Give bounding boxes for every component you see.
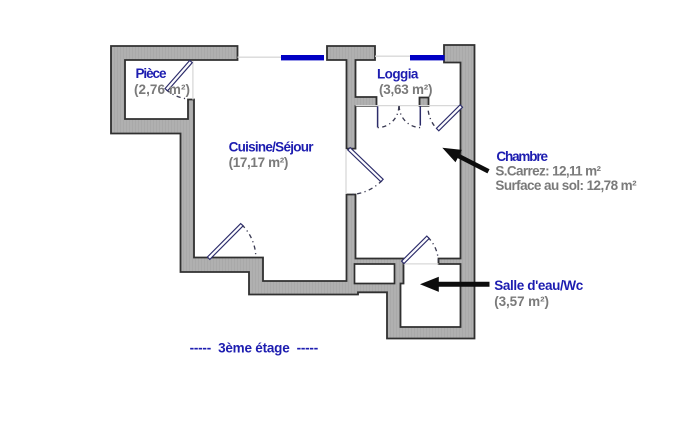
svg-text:Cuisine/Séjour: Cuisine/Séjour [229, 139, 315, 154]
svg-text:Pièce: Pièce [136, 66, 167, 81]
svg-text:S.Carrez: 12,11 m²: S.Carrez: 12,11 m² [495, 164, 601, 179]
svg-text:(3,57 m²): (3,57 m²) [494, 294, 549, 309]
svg-text:(17,17 m²): (17,17 m²) [229, 155, 289, 170]
svg-text:----- 3ème étage -----: ----- 3ème étage ----- [190, 340, 319, 355]
svg-text:(3,63 m²): (3,63 m²) [379, 82, 433, 97]
svg-text:(2,76 m²): (2,76 m²) [134, 82, 190, 97]
svg-text:Chambre: Chambre [496, 149, 548, 164]
svg-text:Surface au sol: 12,78 m²: Surface au sol: 12,78 m² [495, 178, 637, 193]
svg-text:Salle d'eau/Wc: Salle d'eau/Wc [494, 278, 584, 293]
svg-text:Loggia: Loggia [377, 67, 419, 82]
